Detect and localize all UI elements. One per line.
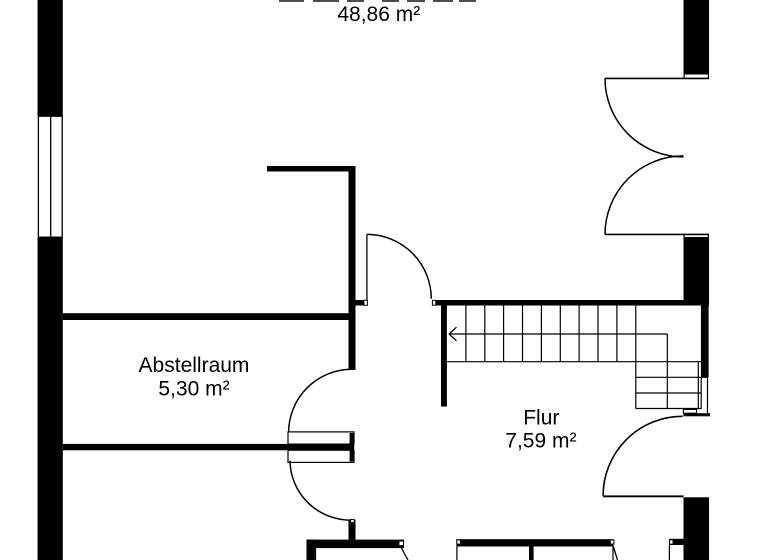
svg-text:7,59 m²: 7,59 m² [505,430,576,453]
svg-text:5,30 m²: 5,30 m² [158,378,229,401]
svg-text:Flur: Flur [523,406,559,429]
svg-text:Abstellraum: Abstellraum [139,354,250,377]
svg-text:48,86 m²: 48,86 m² [337,3,420,26]
